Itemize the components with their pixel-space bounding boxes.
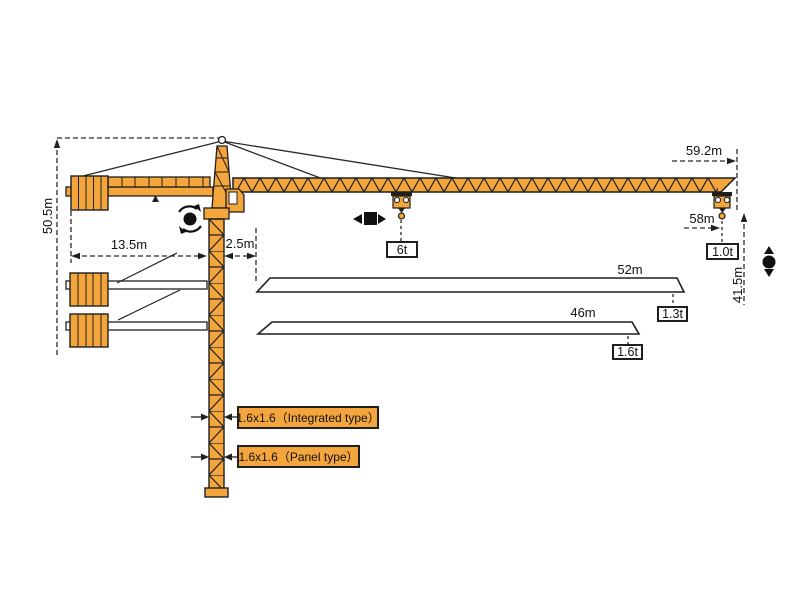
- slewing-icon: [179, 204, 201, 234]
- mast-type-panel-label: 1.6x1.6（Panel type）: [237, 445, 360, 468]
- pendant-cables: [83, 141, 462, 179]
- load-box-52m-tip: 1.3t: [657, 306, 688, 322]
- trolley-travel-icon: [353, 212, 386, 225]
- dim-hook-height-label: 41.5m: [731, 265, 745, 305]
- crane-drawing: [0, 0, 800, 600]
- dim-overall-height-label: 50.5m: [41, 197, 55, 235]
- load-box-mid-jib: 6t: [386, 241, 418, 258]
- jib: [233, 178, 735, 192]
- slewing-unit: [204, 208, 229, 219]
- dim-hook-radius-label: 58m: [686, 212, 718, 226]
- dim-slew-offset-label: 2.5m: [222, 237, 258, 251]
- trolley-hook-mid: [391, 192, 412, 219]
- jib-variant-46m-label: 46m: [566, 306, 600, 320]
- jib-variant-bar-46m: [258, 322, 639, 334]
- hook-tip: [719, 213, 725, 219]
- counterweight-stack-1: [66, 273, 207, 306]
- dim-counter-jib-label: 13.5m: [107, 238, 151, 252]
- mast-base: [205, 488, 228, 497]
- tower-apex-pin: [219, 137, 226, 144]
- hook-mid: [399, 213, 405, 219]
- crane-diagram-canvas: 50.5m 13.5m 2.5m 59.2m 58m 41.5m 52m 46m…: [0, 0, 800, 600]
- jib-variant-bar-52m: [257, 278, 684, 292]
- load-box-46m-tip: 1.6t: [612, 344, 643, 360]
- tower-mast: [204, 208, 229, 497]
- load-box-jib-tip: 1.0t: [706, 243, 739, 260]
- hoist-icon: [763, 246, 776, 277]
- counterweight-block: [71, 176, 108, 210]
- counterweight-stack-2: [66, 314, 207, 347]
- mast-type-integrated-label: 1.6x1.6（Integrated type）: [237, 406, 379, 429]
- jib-variant-52m-label: 52m: [613, 263, 647, 277]
- dim-max-jib-radius-label: 59.2m: [682, 144, 726, 158]
